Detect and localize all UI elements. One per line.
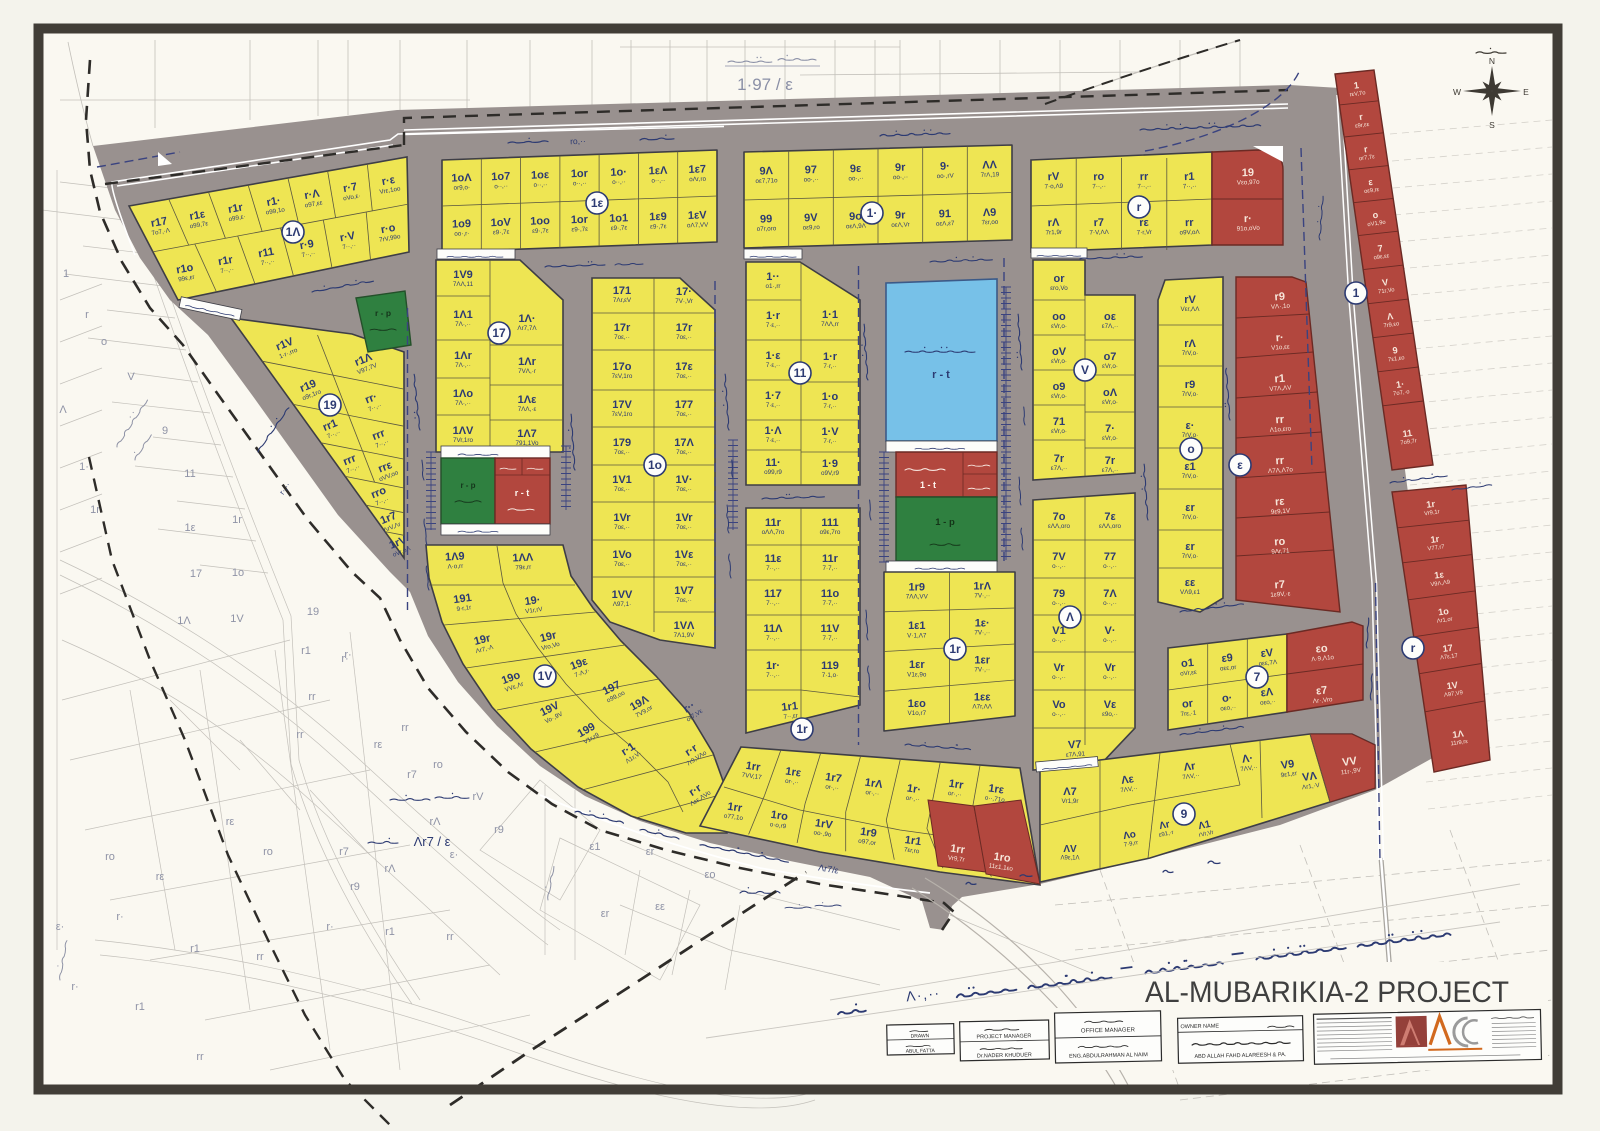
svg-text:DRAWN: DRAWN [911,1033,930,1039]
svg-text:17o: 17o [613,361,632,373]
svg-text:1·o: 1·o [822,391,839,403]
svg-text:ΛV: ΛV [1063,844,1077,855]
svg-text:7oε,··: 7oε,·· [676,373,692,380]
svg-text:1Λ9: 1Λ9 [445,551,465,564]
svg-text:1 - p: 1 - p [935,517,955,528]
svg-text:o: o [1187,442,1194,456]
svg-text:oΛr,ro: oΛr,ro [689,176,707,184]
svg-text:r9: r9 [1274,291,1285,304]
svg-text:o··,··: o··,·· [1052,637,1066,644]
svg-text:1or: 1or [571,214,589,227]
svg-text:9Λ: 9Λ [759,165,774,177]
svg-text:ε1: ε1 [589,841,600,853]
svg-text:rΛ: rΛ [429,816,441,828]
svg-text:9V: 9V [804,212,819,224]
svg-text:o··,··: o··,·· [494,183,508,190]
svg-text:1·Λ: 1·Λ [764,425,782,437]
svg-text:oεΛ,9Λ: oεΛ,9Λ [846,223,867,231]
svg-text:r: r [1411,641,1416,655]
svg-text:1VΛ: 1VΛ [674,620,695,632]
svg-text:o··,··: o··,·· [1052,563,1066,570]
svg-text:79: 79 [1053,588,1065,600]
svg-text:Λr7 / ε: Λr7 / ε [414,834,451,849]
svg-text:9·: 9· [940,160,950,172]
svg-text:εo: εo [704,869,715,881]
svg-text:1r9: 1r9 [909,581,926,593]
svg-text:1Λ7: 1Λ7 [517,428,537,440]
svg-text:7··,··: 7··,·· [766,672,780,679]
svg-text:rΛ: rΛ [384,863,396,875]
svg-text:1·: 1· [867,206,878,220]
svg-text:1VV: 1VV [612,589,633,601]
svg-text:1o: 1o [648,458,662,472]
svg-text:oΛΛ,7ro: oΛΛ,7ro [762,529,785,536]
svg-text:V·: V· [1105,625,1116,637]
svg-text:7rΛ,19: 7rΛ,19 [981,171,1000,179]
svg-text:εVr,o·: εVr,o· [1102,399,1118,406]
svg-text:V·1,Λ7: V·1,Λ7 [907,633,927,640]
svg-text:7o: 7o [1053,511,1066,523]
svg-text:19: 19 [307,606,319,618]
svg-text:r9: r9 [494,824,504,836]
svg-text:1V1: 1V1 [612,474,632,486]
svg-text:V1ε,9o: V1ε,9o [907,671,927,678]
svg-text:Dr.NADER KHUDUER: Dr.NADER KHUDUER [977,1052,1032,1059]
svg-text:7rV,o·: 7rV,o· [1182,350,1199,357]
svg-text:Vr: Vr [1053,662,1065,674]
svg-text:oε9,ro: oε9,ro [803,224,821,232]
svg-text:r1: r1 [301,645,311,657]
svg-text:r - t: r - t [515,488,530,498]
svg-text:17V: 17V [612,399,632,411]
svg-text:r - p: r - p [375,308,391,318]
svg-text:7Vr,1ro: 7Vr,1ro [453,437,474,444]
svg-text:7·1,o·: 7·1,o· [822,672,838,679]
svg-text:o··,··: o··,·· [533,181,547,188]
svg-text:97: 97 [805,164,818,176]
svg-text:ε9·,7ε: ε9·,7ε [571,226,588,234]
svg-text:7·ε,··: 7·ε,·· [766,322,780,329]
svg-text:7VΛ,·r: 7VΛ,·r [518,368,536,375]
svg-text:oo·,rV: oo·,rV [937,172,955,180]
svg-text:7·V,ΛΛ: 7·V,ΛΛ [1089,229,1109,237]
svg-text:rr: rr [401,722,409,734]
svg-text:1Λ: 1Λ [286,225,301,239]
svg-text:17ε: 17ε [675,361,693,373]
svg-text:o99,r9: o99,r9 [764,469,782,476]
svg-text:7Λ: 7Λ [1103,588,1117,600]
svg-text:PROJECT MANAGER: PROJECT MANAGER [976,1033,1031,1040]
svg-text:79ε,rr: 79ε,rr [515,564,531,572]
svg-text:7··,··: 7··,·· [1137,183,1151,190]
svg-text:7: 7 [1254,670,1261,684]
svg-text:ε9·,7ε: ε9·,7ε [532,227,549,235]
svg-text:r7: r7 [1274,579,1285,592]
svg-text:rr: rr [1140,171,1150,183]
svg-text:εΛΛ,oro: εΛΛ,oro [1048,523,1071,530]
svg-text:εro,Vo: εro,Vo [1050,285,1068,292]
svg-text:oo·,··: oo·,·· [804,176,819,184]
svg-text:ε: ε [1237,458,1243,472]
svg-text:1Λo: 1Λo [453,388,473,400]
svg-text:7·ε,··: 7·ε,·· [766,437,780,444]
svg-text:oo: oo [1052,311,1066,323]
svg-text:εV: εV [1260,647,1274,660]
svg-text:oεΛ,ε7: oεΛ,ε7 [936,220,955,228]
svg-text:r·: r· [71,981,78,993]
svg-text:1Vε: 1Vε [675,549,694,561]
svg-text:7··,··: 7··,·· [766,600,780,607]
svg-text:ro: ro [263,846,273,858]
svg-text:7r: 7r [1054,453,1065,465]
svg-text:εr: εr [1185,541,1195,553]
svg-text:91: 91 [939,208,952,220]
svg-text:7·7,··: 7·7,·· [822,635,837,642]
svg-text:oε: oε [1104,311,1117,323]
svg-text:1·: 1· [1395,379,1404,390]
svg-text:7oε,··: 7oε,·· [676,486,692,493]
svg-text:11r: 11r [822,553,839,565]
svg-text:εVr,o·: εVr,o· [1051,393,1067,400]
svg-text:ro: ro [1093,171,1105,183]
svg-text:Λ·o,rr: Λ·o,rr [447,563,463,571]
svg-text:1r·: 1r· [766,660,780,672]
svg-text:1V7: 1V7 [674,585,694,597]
svg-text:7V: 7V [1052,551,1066,563]
svg-text:11ε: 11ε [765,553,783,565]
svg-text:W: W [1453,87,1461,97]
svg-text:7··,··: 7··,·· [1183,183,1197,190]
svg-text:1ε1: 1ε1 [908,620,925,632]
svg-text:1Vr: 1Vr [613,512,631,524]
svg-text:7oε,··: 7oε,·· [676,334,692,341]
svg-text:o7r,oro: o7r,oro [757,225,777,233]
svg-text:1·ε: 1·ε [765,350,781,362]
svg-text:11r: 11r [765,517,782,529]
svg-text:1Λ·: 1Λ· [518,313,535,325]
svg-text:1ΛΛ: 1ΛΛ [512,551,534,564]
svg-text:oo·,r·: oo·,r· [454,230,469,238]
svg-text:1r: 1r [232,514,242,526]
svg-text:7Λ·,··: 7Λ·,·· [455,321,471,328]
svg-text:17Λ: 17Λ [674,437,694,449]
svg-text:εo: εo [1315,642,1328,655]
svg-text:rV: rV [1184,294,1196,306]
svg-text:1o7: 1o7 [491,171,510,184]
svg-text:91o,oVo: 91o,oVo [1237,225,1261,233]
svg-text:ε7Λ,··: ε7Λ,·· [1051,465,1067,472]
svg-text:oo·,··: oo·,·· [893,174,908,182]
svg-text:1ε7: 1ε7 [688,163,706,176]
svg-text:1Vr: 1Vr [675,512,693,524]
svg-text:1εV: 1εV [688,209,708,222]
svg-text:7oε,··: 7oε,·· [614,524,630,531]
svg-text:7εV,1ro: 7εV,1ro [612,411,633,418]
svg-text:oΛ7,VV: oΛ7,VV [687,222,709,230]
svg-text:17r: 17r [614,322,631,334]
svg-text:o1·,rr: o1·,rr [765,283,780,290]
svg-text:o9: o9 [1053,381,1066,393]
svg-text:oεΛ,Vr: oεΛ,Vr [891,221,910,229]
svg-text:r1: r1 [1274,373,1285,386]
svg-text:ε·: ε· [56,921,65,933]
svg-text:ε·: ε· [1186,420,1195,432]
svg-text:εε: εε [655,901,665,913]
svg-text:7r: 7r [1105,455,1116,467]
svg-text:1V: 1V [230,613,244,625]
svg-text:V1o,r7: V1o,r7 [908,710,927,717]
svg-text:r - t: r - t [932,369,950,381]
svg-text:7·7,··: 7·7,·· [822,600,837,607]
svg-text:rV: rV [1047,171,1060,183]
svg-text:rr: rr [308,691,316,703]
svg-text:7V·,··: 7V·,·· [974,630,990,637]
svg-text:r·: r· [1275,332,1284,345]
svg-text:1ε: 1ε [184,522,195,534]
svg-text:11: 11 [1402,428,1413,439]
svg-text:7·7,··: 7·7,·· [822,565,837,572]
svg-text:rr: rr [1275,455,1285,468]
svg-text:εVr,o·: εVr,o· [1051,358,1067,365]
svg-text:1o: 1o [1437,606,1449,617]
svg-text:o··,··: o··,·· [1052,711,1066,718]
svg-text:rr: rr [1185,217,1195,229]
svg-text:r1: r1 [385,926,395,938]
svg-text:1oV: 1oV [490,217,511,230]
svg-text:N: N [1489,56,1495,66]
svg-text:rΛ: rΛ [1184,338,1196,350]
svg-text:rV: rV [473,791,485,803]
svg-text:oΛ: oΛ [1103,387,1118,399]
svg-text:rΛ: rΛ [1047,217,1060,229]
svg-text:7V·,··: 7V·,·· [974,593,990,600]
svg-text:rr: rr [1275,414,1285,427]
svg-text:7ε: 7ε [1104,511,1116,523]
svg-text:o··,··: o··,·· [1103,637,1117,644]
svg-text:o··,··: o··,·· [1052,674,1066,681]
svg-text:rε: rε [226,816,235,828]
svg-text:VΛ·,1o: VΛ·,1o [1271,302,1291,310]
svg-text:71: 71 [1053,416,1065,428]
svg-text:1oε: 1oε [531,169,550,182]
svg-text:ε7: ε7 [1315,684,1328,697]
svg-text:ε1: ε1 [1184,461,1195,473]
svg-text:177: 177 [675,399,693,411]
svg-text:εVr,o·: εVr,o· [1051,323,1067,330]
svg-text:1r: 1r [949,642,961,656]
svg-text:r: r [1137,200,1142,214]
svg-text:o··,··: o··,·· [573,180,587,187]
svg-text:1·: 1· [79,461,89,473]
svg-text:Λ9: Λ9 [983,207,997,219]
svg-text:11V: 11V [821,623,841,635]
svg-text:1ε·: 1ε· [975,617,990,629]
svg-text:11o: 11o [821,588,840,600]
svg-text:7Λ1,9V: 7Λ1,9V [674,632,695,639]
svg-text:εr: εr [646,846,655,858]
svg-text:1o9: 1o9 [452,218,471,231]
svg-text:o7: o7 [1104,351,1117,363]
svg-text:or: or [1181,698,1194,711]
svg-text:7oε,··: 7oε,·· [676,561,692,568]
svg-text:r·: r· [341,653,348,665]
svg-text:Vr1,9r: Vr1,9r [1062,798,1079,805]
svg-text:V: V [127,371,135,383]
svg-text:r1: r1 [190,943,200,955]
svg-text:1·7: 1·7 [765,390,781,402]
svg-text:r·: r· [326,921,333,933]
svg-text:o9V,oΛ: o9V,oΛ [1179,229,1200,237]
svg-text:ABUL FATTA: ABUL FATTA [906,1048,936,1055]
svg-text:7Λ·,··: 7Λ·,·· [455,400,471,407]
svg-text:1oΛ: 1oΛ [451,172,472,185]
svg-text:or9,o·: or9,o· [453,184,470,192]
svg-text:7·ε,··: 7·ε,·· [766,362,780,369]
svg-text:o··,··: o··,·· [1103,674,1117,681]
svg-text:17r: 17r [676,322,693,334]
svg-text:VΛ9,ε1: VΛ9,ε1 [1180,589,1200,596]
svg-text:V1o,εε: V1o,εε [1271,344,1290,352]
svg-text:7·r,··: 7·r,·· [823,363,836,370]
svg-text:E: E [1523,87,1529,97]
svg-text:7·r,Vr: 7·r,Vr [1137,229,1152,237]
svg-text:1··: 1·· [766,271,779,283]
svg-text:17: 17 [190,568,202,580]
svg-text:9ε: 9ε [850,163,863,175]
svg-text:7rV,o·: 7rV,o· [1182,553,1199,560]
svg-text:7ΛΛ,VV: 7ΛΛ,VV [906,594,929,601]
svg-text:1rΛ: 1rΛ [973,581,991,593]
svg-text:r - p: r - p [460,481,475,490]
svg-text:ε9·,7ε: ε9·,7ε [611,225,628,233]
svg-text:1ε: 1ε [591,196,604,210]
svg-text:r1: r1 [135,1001,145,1013]
svg-text:7Λ·,··: 7Λ·,·· [455,362,471,369]
svg-text:1·r: 1·r [766,310,781,322]
svg-text:oε7,71o: oε7,71o [755,177,778,185]
svg-text:εΛΛ,oro: εΛΛ,oro [1099,523,1122,530]
svg-text:Vεr,ΛΛ: Vεr,ΛΛ [1181,306,1201,313]
svg-text:17·: 17· [676,286,692,298]
svg-text:1oo: 1oo [530,215,550,228]
svg-text:1 - t: 1 - t [920,480,936,490]
svg-text:7r1,9r: 7r1,9r [1045,229,1062,237]
svg-text:o··,··: o··,·· [1052,600,1066,607]
svg-text:rε: rε [156,871,165,883]
svg-text:Λ97,1·: Λ97,1· [613,601,632,608]
svg-text:r7: r7 [339,846,349,858]
svg-text:11Λ: 11Λ [764,623,784,635]
svg-text:εVr,o·: εVr,o· [1102,363,1118,370]
svg-text:7·ε,··: 7·ε,·· [766,402,780,409]
svg-text:17: 17 [1442,643,1454,654]
svg-text:ε9o,··: ε9o,·· [1102,711,1118,718]
svg-text:7rV,o·: 7rV,o· [1182,391,1199,398]
svg-text:ΛΛ: ΛΛ [982,159,998,172]
svg-text:7εV,1ro: 7εV,1ro [612,373,633,380]
svg-text:ro,··: ro,·· [570,136,586,147]
svg-text:9Λr,71: 9Λr,71 [1271,548,1290,556]
svg-text:111: 111 [821,517,838,529]
svg-text:7V·,Vr: 7V·,Vr [675,298,693,305]
svg-text:r9: r9 [1185,379,1195,391]
svg-text:r·: r· [116,911,123,923]
svg-text:1V9: 1V9 [453,269,473,281]
svg-text:ro: ro [433,759,443,771]
svg-text:o··,··: o··,·· [1103,563,1117,570]
svg-text:o·: o· [1221,692,1233,705]
svg-text:77: 77 [1104,551,1116,563]
svg-text:11: 11 [184,468,195,480]
svg-text:1·97 / ε: 1·97 / ε [737,75,793,94]
svg-text:ε9: ε9 [1221,652,1234,665]
svg-text:ε7Λ,··: ε7Λ,·· [1102,467,1118,474]
svg-text:7oε,··: 7oε,·· [676,449,692,456]
svg-text:rr: rr [256,951,264,963]
svg-text:V7: V7 [1068,739,1082,752]
svg-text:1or: 1or [571,168,589,181]
svg-text:rr: rr [196,1051,204,1063]
svg-text:ro: ro [1274,536,1286,549]
svg-text:179: 179 [613,437,631,449]
svg-text:1·r: 1·r [823,351,838,363]
svg-text:7V·,··: 7V·,·· [974,667,990,674]
svg-text:1Λ1: 1Λ1 [453,309,473,321]
svg-text:Λ9ε,1Λ: Λ9ε,1Λ [1060,856,1079,862]
svg-text:1V·: 1V· [675,474,692,486]
svg-text:S: S [1489,120,1495,130]
svg-text:1Vo: 1Vo [612,549,632,561]
svg-text:ε7Λ,··: ε7Λ,·· [1102,323,1118,330]
svg-text:Λ7r,ΛΛ: Λ7r,ΛΛ [972,704,992,711]
svg-text:19: 19 [323,398,337,412]
svg-text:1V: 1V [538,669,553,683]
svg-text:7ΛΛ,11: 7ΛΛ,11 [453,281,474,288]
svg-text:ro: ro [105,851,115,863]
svg-text:εr: εr [1185,502,1195,514]
svg-text:9: 9 [162,425,168,437]
svg-text:7·r,··: 7·r,·· [823,438,836,445]
svg-text:171: 171 [613,285,631,297]
svg-text:1εr: 1εr [909,659,925,671]
svg-text:1Λε: 1Λε [518,394,537,406]
svg-text:7oε,··: 7oε,·· [614,486,630,493]
svg-text:Vo: Vo [1052,699,1066,711]
svg-text:Vr: Vr [1104,662,1116,674]
svg-text:9: 9 [1181,807,1188,821]
svg-text:OWNER NAME: OWNER NAME [1180,1023,1219,1030]
svg-text:19: 19 [1242,167,1255,179]
svg-text:r7: r7 [407,769,417,781]
svg-text:εVr,o·: εVr,o· [1051,428,1067,435]
svg-text:ε9·,7ε: ε9·,7ε [650,223,667,231]
svg-text:1: 1 [63,268,69,280]
svg-text:7·: 7· [1105,423,1115,435]
svg-text:7oε,··: 7oε,·· [614,561,630,568]
svg-text:11·: 11· [765,457,780,469]
svg-text:7oε,··: 7oε,·· [676,597,692,604]
svg-text:εΛ: εΛ [1260,686,1274,699]
svg-text:ε9·,7ε: ε9·,7ε [493,229,510,237]
svg-text:7rV,o·: 7rV,o· [1182,514,1199,521]
svg-text:Λr7,7Λ: Λr7,7Λ [517,325,537,332]
svg-text:119: 119 [821,660,839,672]
svg-text:7ΛΛ,rr: 7ΛΛ,rr [821,321,839,328]
svg-text:r: r [85,309,89,321]
svg-text:9r: 9r [895,162,907,174]
svg-text:1Λr: 1Λr [518,356,536,368]
svg-text:o: o [101,336,107,348]
